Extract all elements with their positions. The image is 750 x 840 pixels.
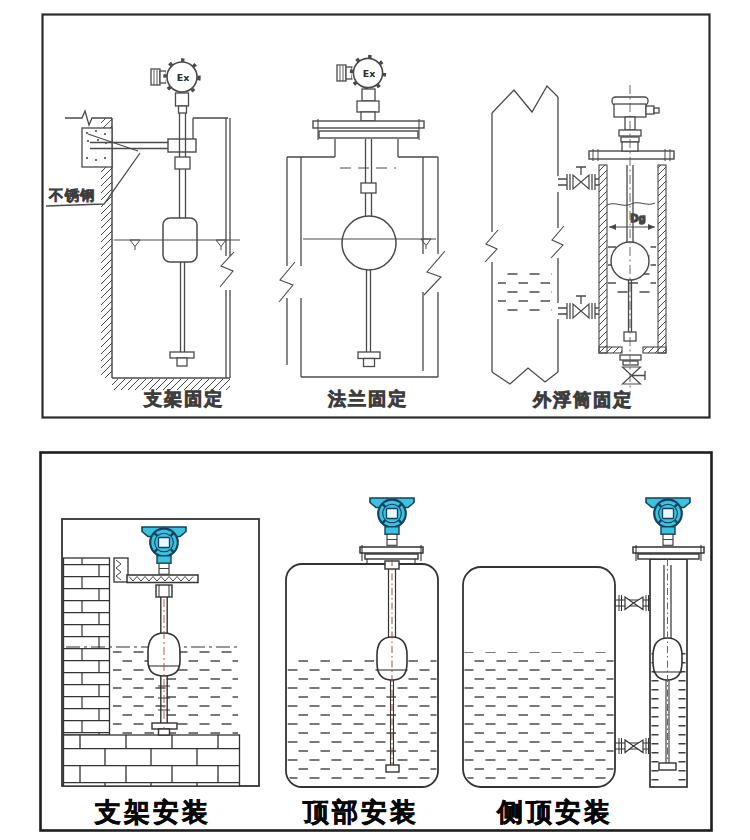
liquid [287, 658, 437, 787]
float-ball [342, 216, 396, 270]
ex-marking: Ex [177, 72, 190, 83]
panel-fixing-methods: 不锈钢 Ex 支架固定 [43, 15, 710, 418]
caption-side-top-installation: 侧顶安装 [496, 797, 613, 827]
caption-external-chamber-fixing: 外浮筒固定 [532, 389, 633, 410]
drawing-bracket-installation: 支架安装 [62, 519, 259, 827]
material-label: 不锈钢 [48, 187, 96, 203]
installation-diagram-page: 不锈钢 Ex 支架固定 [0, 0, 750, 840]
float-level-transmitter-installation-diagrams: 不锈钢 Ex 支架固定 [0, 0, 750, 840]
liquid [464, 652, 614, 787]
chamber-flange [633, 545, 704, 561]
tank-liquid [498, 268, 552, 312]
float [377, 637, 407, 680]
caption-bracket-installation: 支架安装 [94, 797, 211, 827]
caption-flange-fixing: 法兰固定 [327, 388, 408, 409]
panel-installation-methods: 支架安装 顶部安装 [41, 453, 712, 831]
ex-marking: Ex [363, 68, 376, 79]
caption-bracket-fixing: 支架固定 [143, 388, 224, 409]
float [653, 638, 682, 680]
caption-top-installation: 顶部安装 [302, 797, 419, 827]
brick-floor [64, 735, 240, 786]
